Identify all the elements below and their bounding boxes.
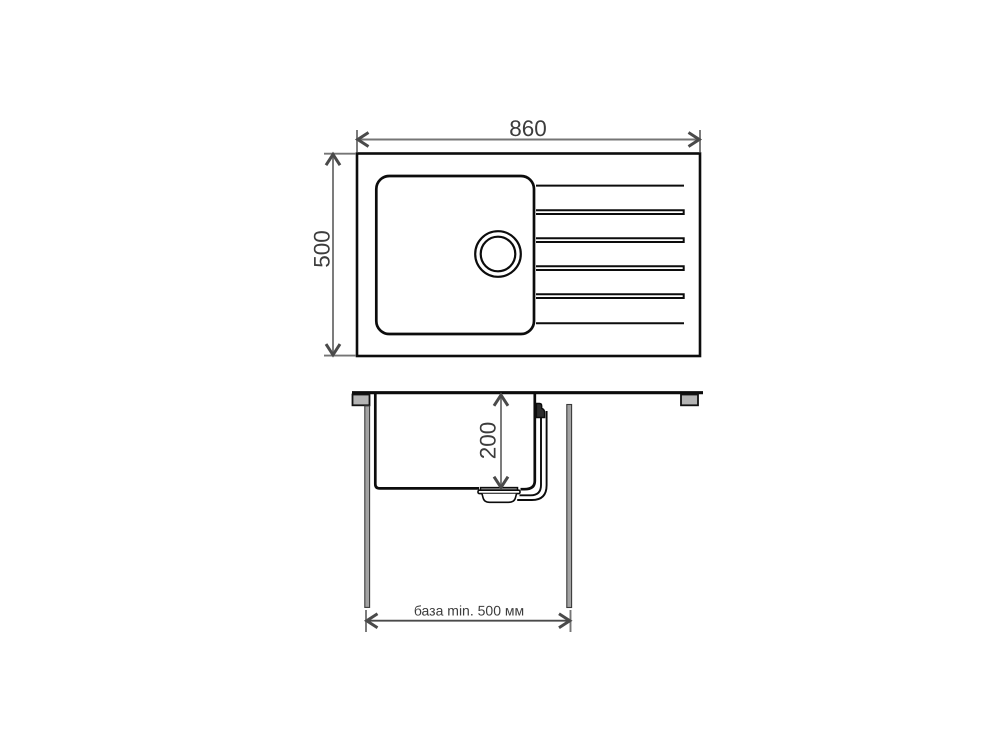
svg-text:200: 200 <box>476 422 501 460</box>
svg-text:база min. 500 мм: база min. 500 мм <box>414 603 524 619</box>
svg-text:860: 860 <box>509 116 547 141</box>
svg-text:500: 500 <box>310 230 335 268</box>
